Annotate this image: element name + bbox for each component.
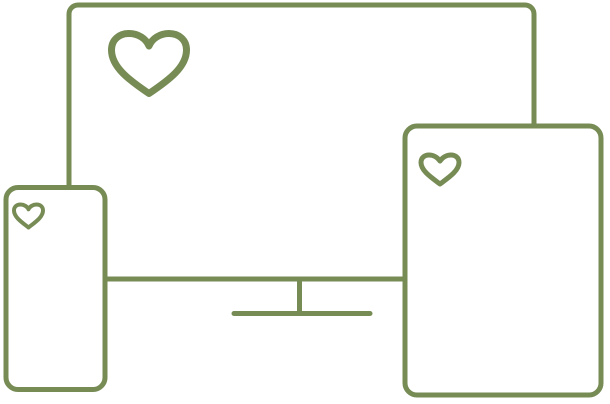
tablet-icon (405, 126, 601, 395)
monitor-heart-icon (112, 34, 187, 94)
phone-icon (6, 188, 105, 390)
devices-illustration-svg (0, 0, 610, 404)
devices-illustration (0, 0, 610, 404)
